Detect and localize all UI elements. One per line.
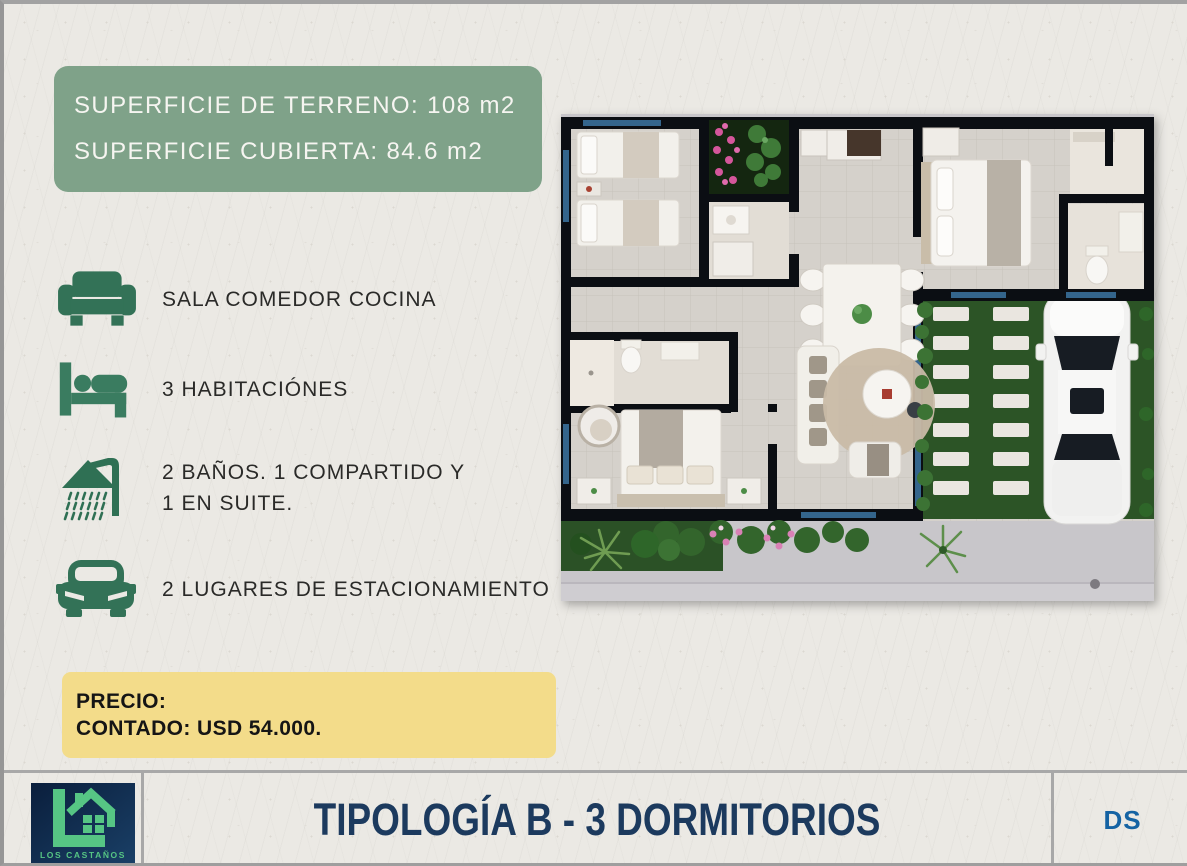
feature-label: SALA COMEDOR COCINA (162, 288, 437, 311)
bed-icon (56, 357, 144, 421)
surface-terrain-text: SUPERFICIE DE TERRENO: 108 m2 (74, 92, 542, 120)
sofa-icon (56, 269, 144, 329)
floor-plan-image (561, 114, 1154, 601)
feature-label-line1: 2 BAÑOS. 1 COMPARTIDO Y (162, 457, 465, 488)
price-label: PRECIO: (76, 690, 556, 714)
feature-bathrooms: 2 BAÑOS. 1 COMPARTIDO Y 1 EN SUITE. (56, 446, 586, 530)
surface-info-box: SUPERFICIE DE TERRENO: 108 m2 SUPERFICIE… (54, 66, 542, 192)
ds-badge: DS (1054, 773, 1187, 866)
logo-wordmark: LOS CASTAÑOS (31, 850, 135, 860)
surface-covered-text: SUPERFICIE CUBIERTA: 84.6 m2 (74, 138, 542, 166)
feature-label-line2: 1 EN SUITE. (162, 488, 465, 519)
flyer-page: SUPERFICIE DE TERRENO: 108 m2 SUPERFICIE… (0, 0, 1187, 866)
feature-label: 2 LUGARES DE ESTACIONAMIENTO (162, 578, 550, 601)
typology-title-text: TIPOLOGÍA B - 3 DORMITORIOS (314, 794, 881, 846)
car-icon (56, 558, 144, 620)
shower-icon (56, 448, 144, 528)
price-value: CONTADO: USD 54.000. (76, 717, 556, 741)
feature-label: 3 HABITACIÓNES (162, 378, 348, 401)
feature-bedrooms: 3 HABITACIÓNES (56, 356, 586, 422)
company-logo: LOS CASTAÑOS (31, 783, 135, 866)
feature-parking: 2 LUGARES DE ESTACIONAMIENTO (56, 556, 586, 622)
price-box: PRECIO: CONTADO: USD 54.000. (62, 672, 556, 758)
typology-title: TIPOLOGÍA B - 3 DORMITORIOS (144, 773, 1051, 866)
feature-living-room: SALA COMEDOR COCINA (56, 266, 586, 332)
